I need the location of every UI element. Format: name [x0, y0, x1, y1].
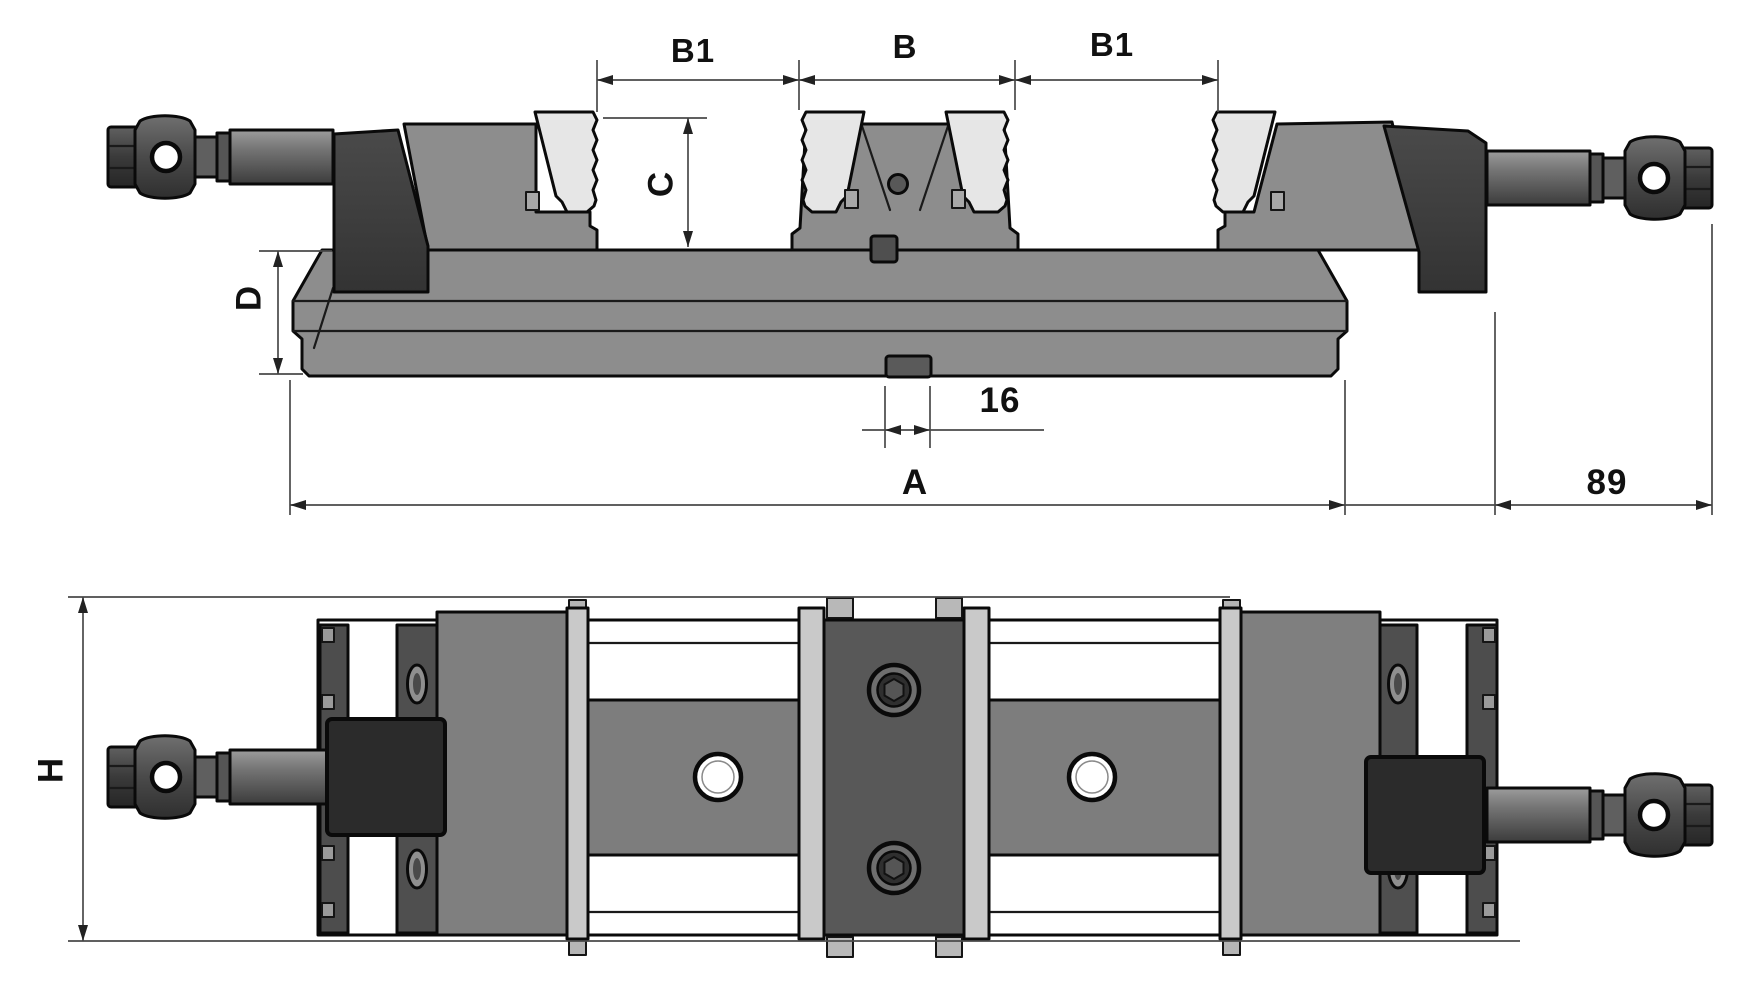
drawing-canvas: B1 B B1 C D 16 A [0, 0, 1754, 985]
dim-label-d: D [229, 285, 268, 311]
dimension-c: C [603, 118, 707, 247]
center-tab-top-right [936, 598, 962, 618]
left-jaw-block-plan [437, 612, 567, 935]
center-left-insert-lip [845, 190, 858, 208]
vise-body-front [108, 112, 1712, 377]
center-tab-top-left [827, 598, 853, 618]
center-tab-bottom-right [936, 937, 962, 957]
vise-technical-drawing: B1 B B1 C D 16 A [0, 0, 1754, 985]
dim-label-b1-left: B1 [671, 32, 715, 69]
right-jaw-strip [1220, 608, 1241, 939]
right-screw-front [1487, 137, 1712, 220]
dimension-lines [290, 380, 1345, 515]
right-jaw-block-plan [1241, 612, 1380, 935]
dimension-a: A [290, 380, 1345, 515]
left-screw-plan [108, 736, 333, 819]
left-slot-bottom-inner [413, 858, 421, 880]
center-tab-bottom-left [827, 937, 853, 957]
plan-view: H [31, 597, 1712, 957]
dim-label-h: H [31, 757, 70, 783]
vise-body-plan [108, 598, 1712, 957]
base-bottom-key [886, 356, 931, 377]
left-nut-block [327, 719, 445, 835]
dim-label-c: C [641, 171, 680, 197]
center-strip-right [964, 608, 989, 939]
socket-screw-bottom [869, 843, 919, 893]
left-jaw-insert-lip [526, 192, 539, 210]
left-slot-top-inner [413, 673, 421, 695]
socket-screw-top [869, 665, 919, 715]
dim-label-89: 89 [1587, 463, 1628, 502]
dimension-16: 16 [862, 381, 1044, 448]
left-jaw-insert [535, 112, 597, 212]
dim-label-a: A [902, 463, 928, 502]
center-strip-left [799, 608, 824, 939]
dimension-89: 89 [1345, 224, 1712, 515]
front-view: B1 B B1 C D 16 A [108, 26, 1712, 515]
dim-label-b: B [893, 28, 918, 65]
base-plate [293, 250, 1347, 376]
left-jaw-strip [567, 608, 588, 939]
dimension-row-b: B1 B B1 [597, 26, 1218, 112]
right-screw-plan [1487, 774, 1712, 857]
center-right-insert-lip [952, 190, 965, 208]
right-jaw-insert-lip [1271, 192, 1284, 210]
center-guide-key [871, 236, 897, 262]
center-block-hole [889, 175, 908, 194]
right-nut-block [1366, 757, 1484, 873]
left-screw-front [108, 116, 333, 199]
dimension-lines [1345, 224, 1712, 515]
dim-label-16: 16 [980, 381, 1021, 420]
right-slot-top-inner [1394, 673, 1402, 695]
dim-label-b1-right: B1 [1090, 26, 1134, 63]
